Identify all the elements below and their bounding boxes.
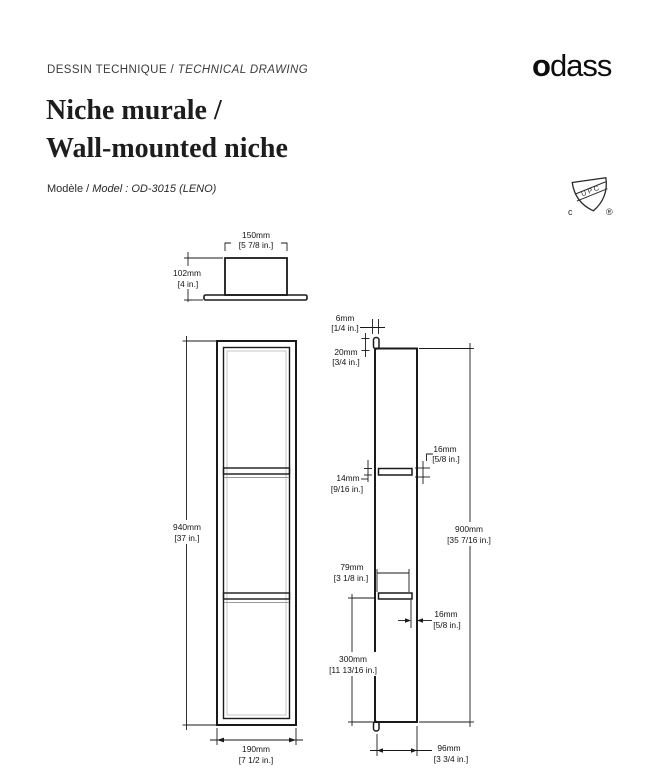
dim-shelf-thickness-mm: 14mm [336,473,359,483]
dim-top-offset-in: [3/4 in.] [332,357,359,367]
dimension-inner-height: 900mm [35 7/16 in.] [419,343,497,727]
dim-front-height-in: [37 in.] [174,533,199,543]
dim-top-depth-in: [4 in.] [178,279,198,289]
dim-shelf-thickness-in: [9/16 in.] [331,484,363,494]
side-shelf-1 [379,469,413,476]
dim-bottom-section-in: [11 13/16 in.] [329,665,377,675]
dimension-shelf-thickness: 14mm [9/16 in.] [331,460,372,494]
dim-front-width-in: [7 1/2 in.] [239,755,273,765]
top-view [204,258,307,300]
dimension-top-width: 150mm [5 7/8 in.] [225,230,287,251]
dim-top-offset-mm: 20mm [334,347,357,357]
side-shelf-2 [379,593,413,599]
side-top-lip [374,338,380,350]
dimension-front-width: 190mm [7 1/2 in.] [210,728,303,765]
dim-shelf-depth-mm: 79mm [340,562,363,572]
dim-top-width-in: [5 7/8 in.] [239,240,273,250]
dimension-shelf-depth: 79mm [3 1/8 in.] [334,562,409,592]
dimension-body-depth: 96mm [3 3/4 in.] [370,726,468,764]
dim-body-depth-mm: 96mm [437,743,460,753]
dim-front-width-mm: 190mm [242,744,270,754]
dim-lip-mm: 6mm [336,313,355,323]
technical-drawing: 150mm [5 7/8 in.] 102mm [4 in.] [0,0,658,770]
dimension-shelf-edge-lower: 16mm [5/8 in.] [398,600,461,630]
dimension-shelf-edge-upper: 16mm [5/8 in.] [415,444,460,484]
dim-shelf-edge-upper-mm: 16mm [433,444,456,454]
dimension-lip-width: 6mm [1/4 in.] [331,313,385,334]
dim-bottom-section-mm: 300mm [339,654,367,664]
dim-front-height-mm: 940mm [173,522,201,532]
dim-shelf-depth-in: [3 1/8 in.] [334,573,368,583]
dim-shelf-edge-lower-in: [5/8 in.] [433,620,460,630]
dim-shelf-edge-lower-mm: 16mm [434,609,457,619]
dimension-front-height: 940mm [37 in.] [165,336,216,730]
dim-top-width-mm: 150mm [242,230,270,240]
dim-inner-height-in: [35 7/16 in.] [447,535,491,545]
front-shelf-1 [224,468,290,478]
dimension-top-offset: 20mm [3/4 in.] [332,333,369,367]
dim-top-depth-mm: 102mm [173,268,201,278]
dim-lip-in: [1/4 in.] [331,323,358,333]
front-shelf-2 [224,593,290,603]
dim-shelf-edge-upper-in: [5/8 in.] [432,454,459,464]
dim-body-depth-in: [3 3/4 in.] [434,754,468,764]
dim-inner-height-mm: 900mm [455,524,483,534]
front-view [217,341,296,725]
